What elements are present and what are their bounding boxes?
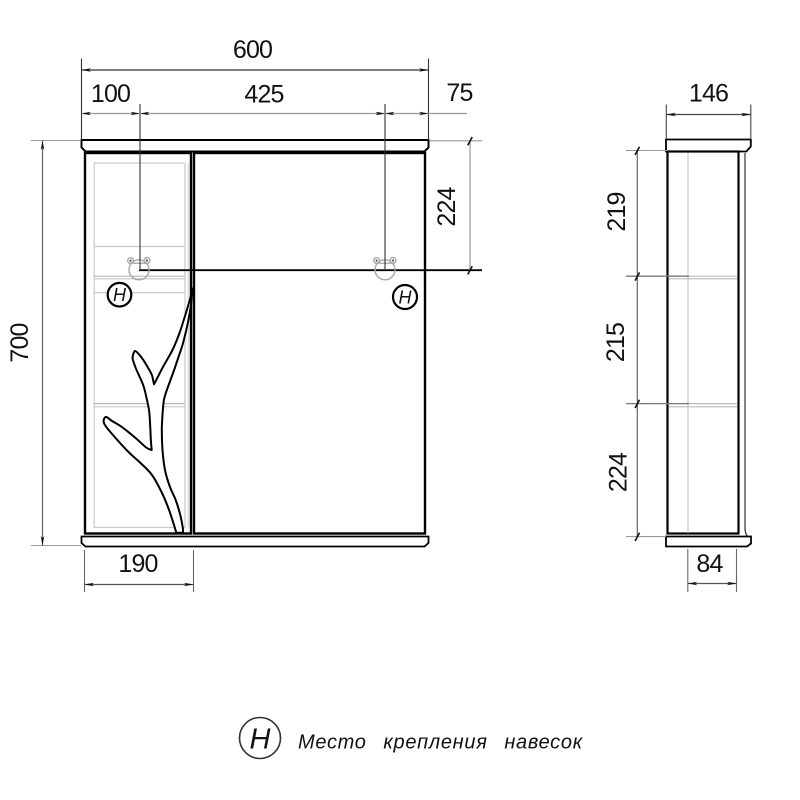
- svg-text:Место крепления навесок: Место крепления навесок: [298, 732, 584, 754]
- svg-text:190: 190: [118, 550, 157, 578]
- svg-text:600: 600: [233, 36, 272, 64]
- svg-text:H: H: [113, 285, 127, 305]
- svg-text:425: 425: [244, 81, 283, 109]
- svg-text:100: 100: [91, 80, 130, 108]
- svg-text:75: 75: [446, 79, 472, 107]
- svg-text:H: H: [250, 724, 271, 756]
- svg-text:224: 224: [605, 452, 633, 492]
- svg-text:H: H: [399, 287, 413, 307]
- svg-text:700: 700: [6, 323, 34, 362]
- svg-text:84: 84: [696, 550, 723, 578]
- svg-text:224: 224: [433, 186, 461, 226]
- svg-text:219: 219: [603, 192, 631, 231]
- svg-text:215: 215: [602, 323, 630, 362]
- svg-text:146: 146: [689, 80, 728, 108]
